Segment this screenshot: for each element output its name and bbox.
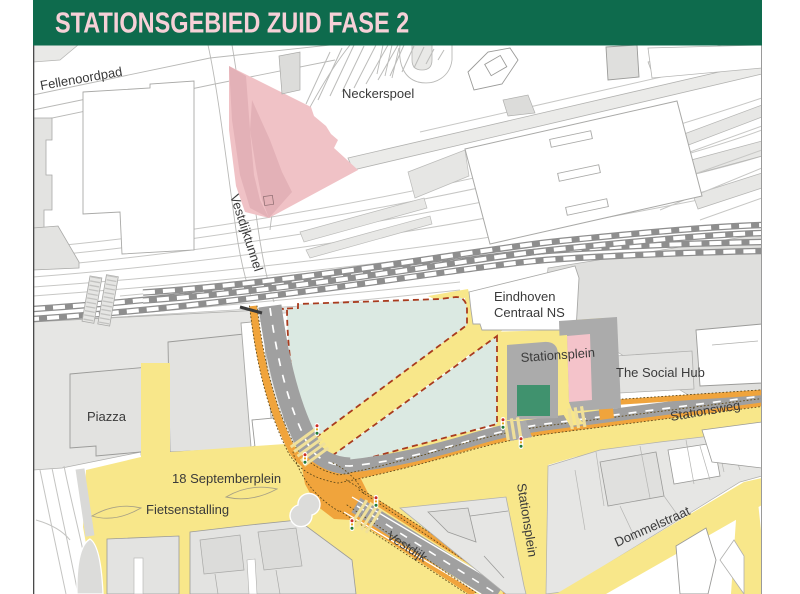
svg-text:Piazza: Piazza	[87, 409, 127, 424]
svg-text:The Social Hub: The Social Hub	[616, 365, 705, 380]
svg-text:Neckerspoel: Neckerspoel	[342, 86, 414, 101]
svg-text:Eindhoven: Eindhoven	[494, 289, 555, 304]
svg-text:Fietsenstalling: Fietsenstalling	[146, 502, 229, 517]
svg-text:Centraal NS: Centraal NS	[494, 305, 565, 320]
svg-text:STATIONSGEBIED ZUID FASE 2: STATIONSGEBIED ZUID FASE 2	[55, 6, 409, 39]
svg-text:18 Septemberplein: 18 Septemberplein	[172, 471, 281, 486]
